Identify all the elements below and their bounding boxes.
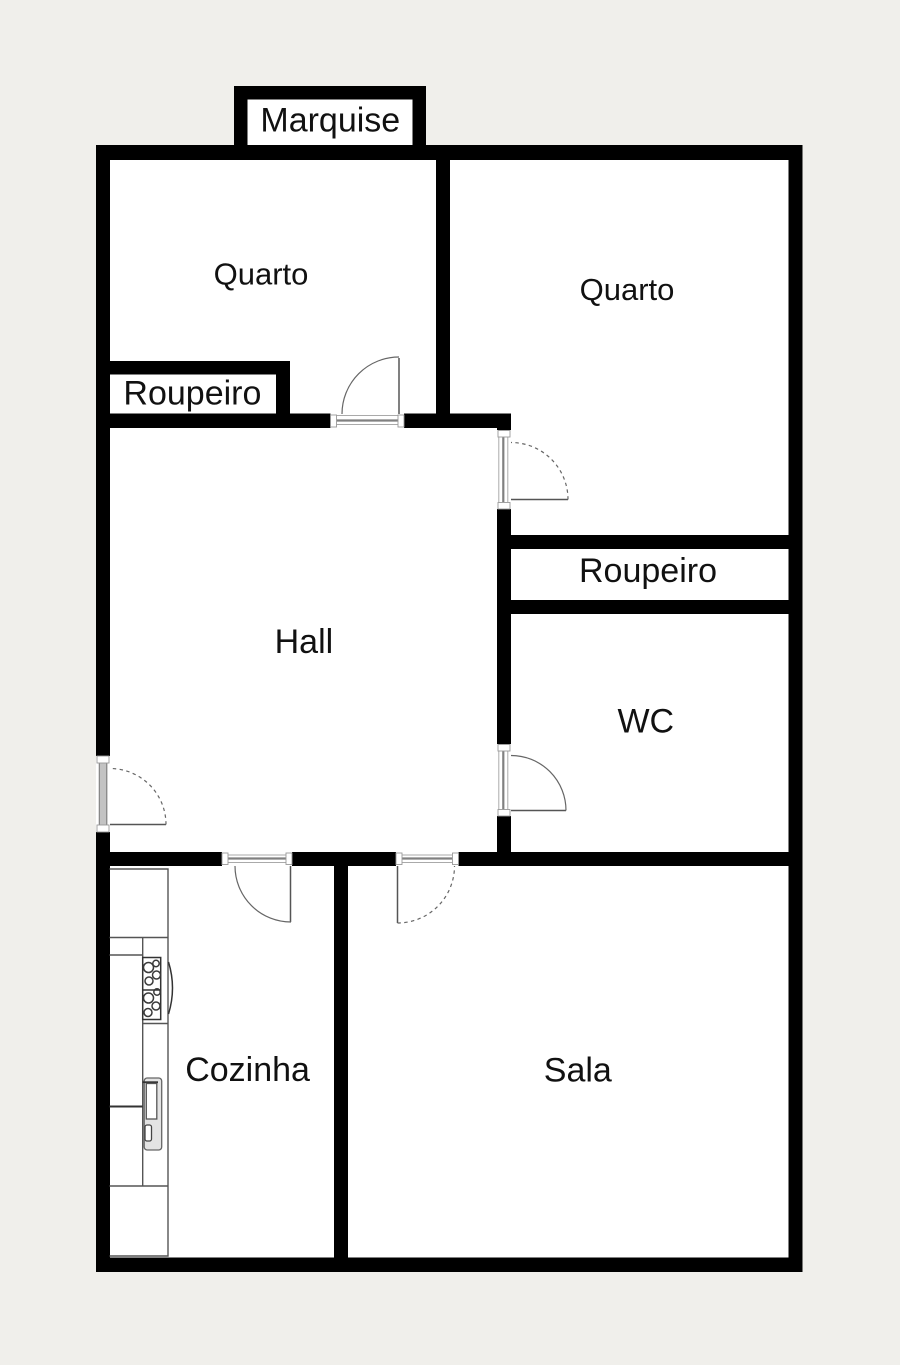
svg-text:Quarto: Quarto: [580, 272, 675, 307]
svg-text:Sala: Sala: [544, 1052, 612, 1090]
svg-text:Roupeiro: Roupeiro: [579, 552, 717, 590]
svg-text:WC: WC: [617, 703, 674, 741]
svg-text:Quarto: Quarto: [214, 257, 309, 292]
svg-text:Cozinha: Cozinha: [185, 1051, 310, 1089]
svg-text:Hall: Hall: [275, 623, 334, 661]
svg-text:Marquise: Marquise: [260, 102, 400, 140]
svg-text:Roupeiro: Roupeiro: [123, 375, 261, 413]
